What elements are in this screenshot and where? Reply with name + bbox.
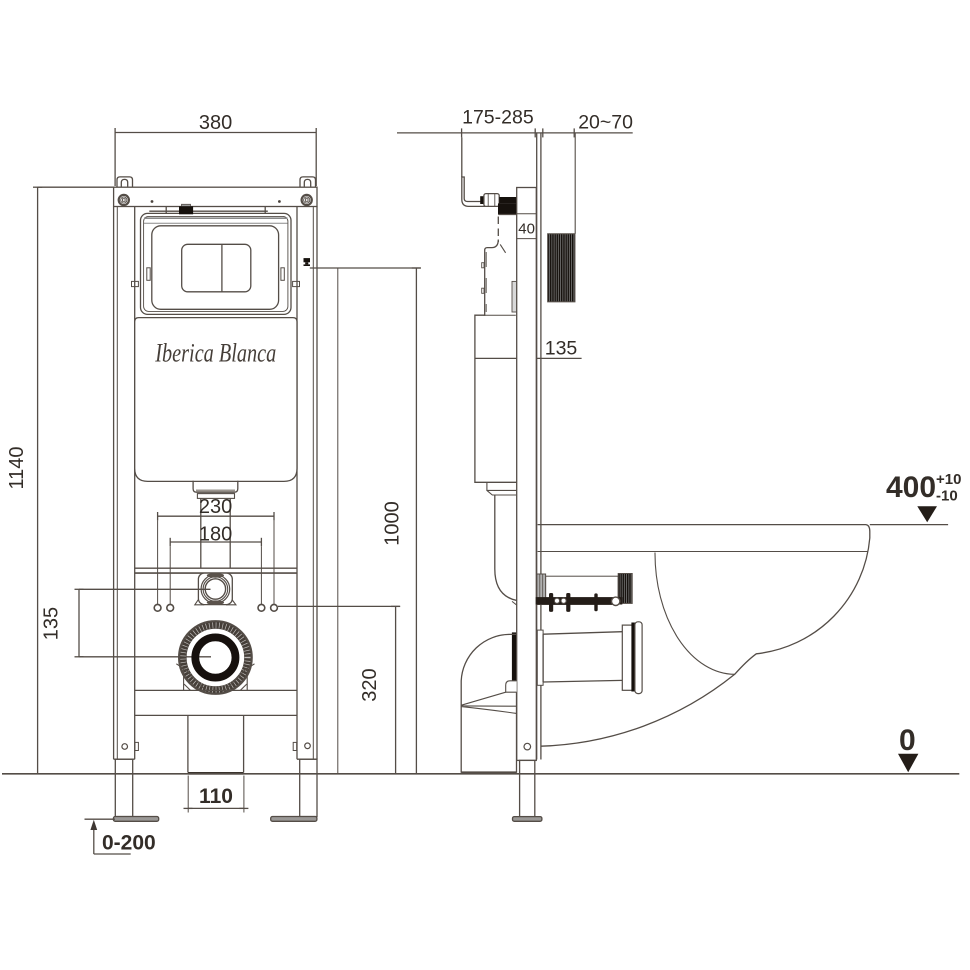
svg-text:0: 0 <box>899 724 916 757</box>
svg-text:40: 40 <box>518 221 535 238</box>
svg-text:135: 135 <box>545 338 578 360</box>
svg-text:-10: -10 <box>936 488 958 505</box>
svg-text:400: 400 <box>886 471 936 504</box>
svg-text:Iberica Blanca: Iberica Blanca <box>155 339 277 368</box>
svg-text:380: 380 <box>199 112 232 134</box>
svg-text:110: 110 <box>199 785 233 808</box>
svg-text:1140: 1140 <box>6 446 28 489</box>
svg-text:320: 320 <box>359 668 381 701</box>
svg-text:175-285: 175-285 <box>462 107 534 129</box>
svg-text:1000: 1000 <box>382 501 404 546</box>
svg-text:20~70: 20~70 <box>578 112 633 134</box>
svg-text:135: 135 <box>41 607 63 640</box>
svg-text:0-200: 0-200 <box>102 832 156 855</box>
svg-text:+10: +10 <box>936 471 961 488</box>
svg-text:230: 230 <box>199 496 232 518</box>
